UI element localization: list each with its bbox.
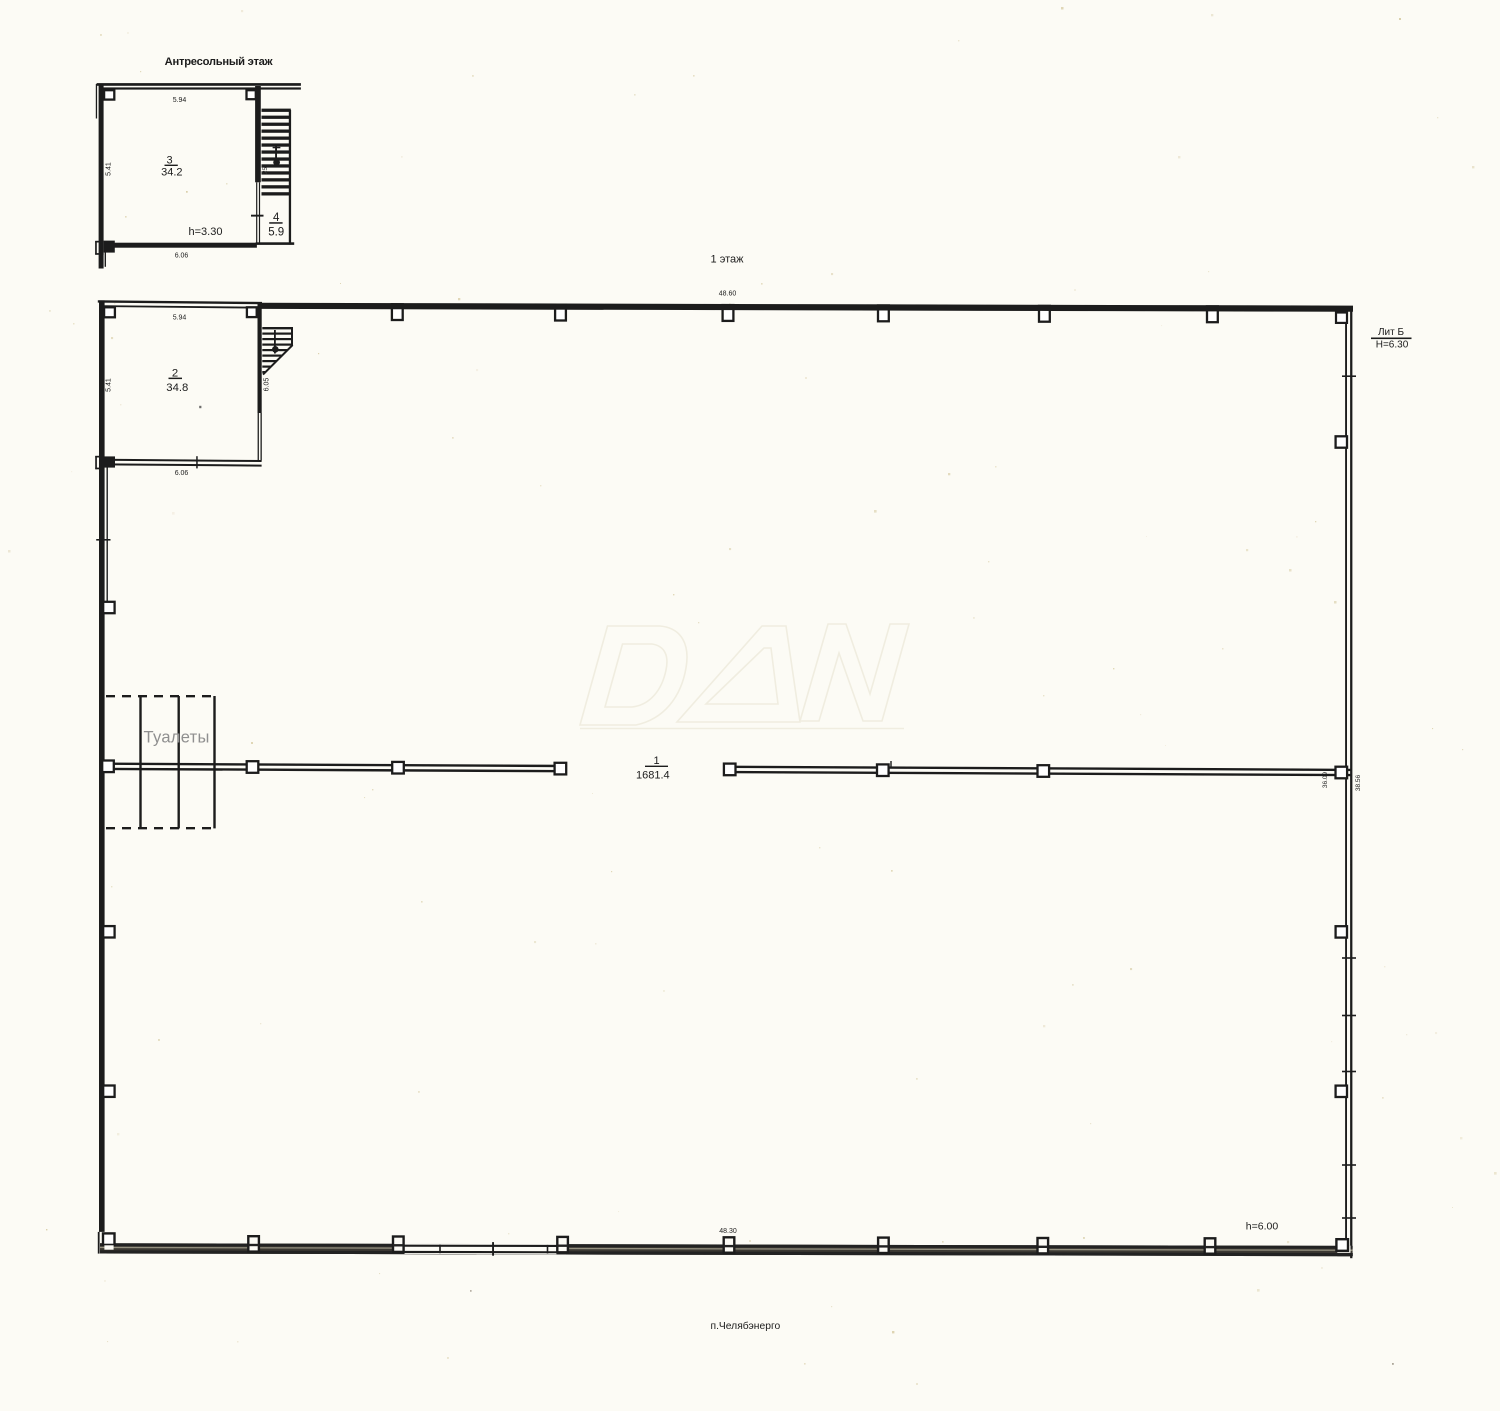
svg-text:h=6.00: h=6.00 xyxy=(1246,1221,1279,1233)
svg-text:Лит Б: Лит Б xyxy=(1378,327,1405,338)
svg-text:48.60: 48.60 xyxy=(719,290,737,297)
svg-text:38.56: 38.56 xyxy=(1355,774,1362,791)
svg-text:3: 3 xyxy=(166,154,172,166)
svg-text:Антресольный этаж: Антресольный этаж xyxy=(165,56,274,68)
svg-text:5.94: 5.94 xyxy=(173,315,187,322)
svg-text:48.30: 48.30 xyxy=(719,1228,737,1235)
svg-text:6.06: 6.06 xyxy=(175,253,189,260)
svg-text:34.2: 34.2 xyxy=(161,167,182,179)
svg-text:5.9: 5.9 xyxy=(268,226,284,238)
svg-text:1681.4: 1681.4 xyxy=(636,770,670,782)
svg-text:36.09: 36.09 xyxy=(1322,771,1329,788)
svg-text:1: 1 xyxy=(653,755,659,767)
svg-text:1 этаж: 1 этаж xyxy=(711,253,745,265)
svg-text:34.8: 34.8 xyxy=(166,382,188,394)
svg-text:5.41: 5.41 xyxy=(106,162,113,176)
svg-text:Н=6.30: Н=6.30 xyxy=(1376,340,1409,351)
svg-text:6.05: 6.05 xyxy=(263,378,270,392)
svg-text:Туалеты: Туалеты xyxy=(144,729,210,747)
svg-text:h=3.30: h=3.30 xyxy=(189,226,223,238)
svg-text:п.Челябэнерго: п.Челябэнерго xyxy=(711,1320,781,1332)
svg-text:6.06: 6.06 xyxy=(175,470,189,477)
svg-text:5.41: 5.41 xyxy=(106,378,113,392)
svg-text:5.94: 5.94 xyxy=(173,97,187,104)
svg-text:25: 25 xyxy=(263,167,269,174)
